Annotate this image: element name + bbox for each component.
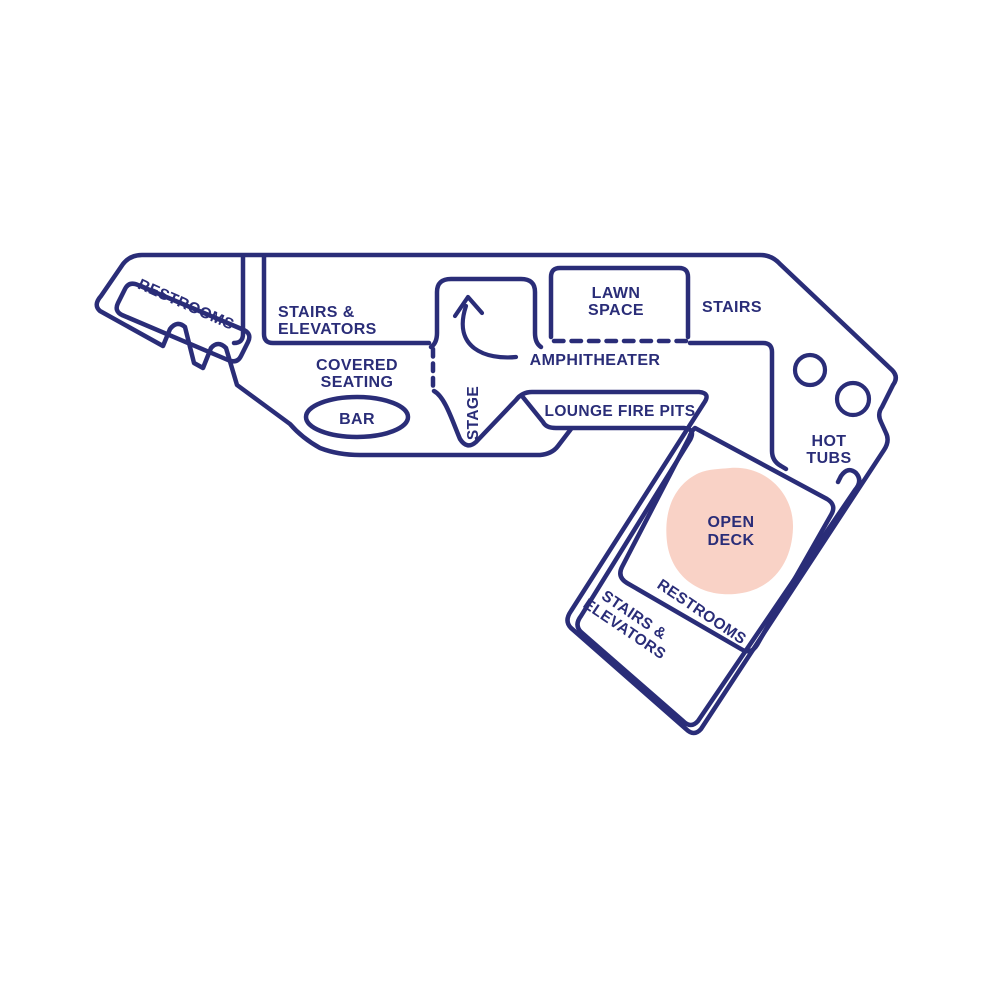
amphitheater-enclosure	[431, 279, 541, 347]
svg-text:OPEN: OPEN	[708, 514, 755, 531]
label-stairs-upper-right: STAIRS	[702, 299, 762, 316]
label-covered-seating: COVERED SEATING	[316, 357, 398, 391]
svg-text:COVERED: COVERED	[316, 357, 398, 374]
label-hot-tubs: HOT TUBS	[806, 433, 851, 467]
svg-text:SPACE: SPACE	[588, 302, 644, 319]
svg-text:TUBS: TUBS	[806, 450, 851, 467]
svg-text:DECK: DECK	[708, 532, 755, 549]
svg-text:ELEVATORS: ELEVATORS	[278, 321, 377, 338]
label-open-deck[interactable]: OPEN DECK	[708, 514, 755, 549]
svg-text:HOT: HOT	[812, 433, 847, 450]
svg-text:STAIRS &: STAIRS &	[278, 304, 355, 321]
hot-tub-circle-1	[795, 355, 825, 385]
hot-tub-circle-2	[837, 383, 869, 415]
svg-text:SEATING: SEATING	[321, 374, 394, 391]
svg-text:LAWN: LAWN	[592, 285, 641, 302]
label-lawn-space: LAWN SPACE	[588, 285, 644, 319]
label-bar: BAR	[339, 411, 375, 428]
label-lounge-fire-pits: LOUNGE FIRE PITS	[544, 403, 695, 420]
venue-map: RESTROOMS STAIRS & ELEVATORS COVERED SEA…	[0, 0, 1000, 1000]
label-amphitheater: AMPHITHEATER	[530, 352, 661, 369]
amphitheater-arrow-icon	[455, 297, 516, 357]
label-stage: STAGE	[465, 386, 482, 440]
venue-map-page: RESTROOMS STAIRS & ELEVATORS COVERED SEA…	[0, 0, 1000, 1000]
label-stairs-elevators-upper: STAIRS & ELEVATORS	[278, 304, 377, 338]
